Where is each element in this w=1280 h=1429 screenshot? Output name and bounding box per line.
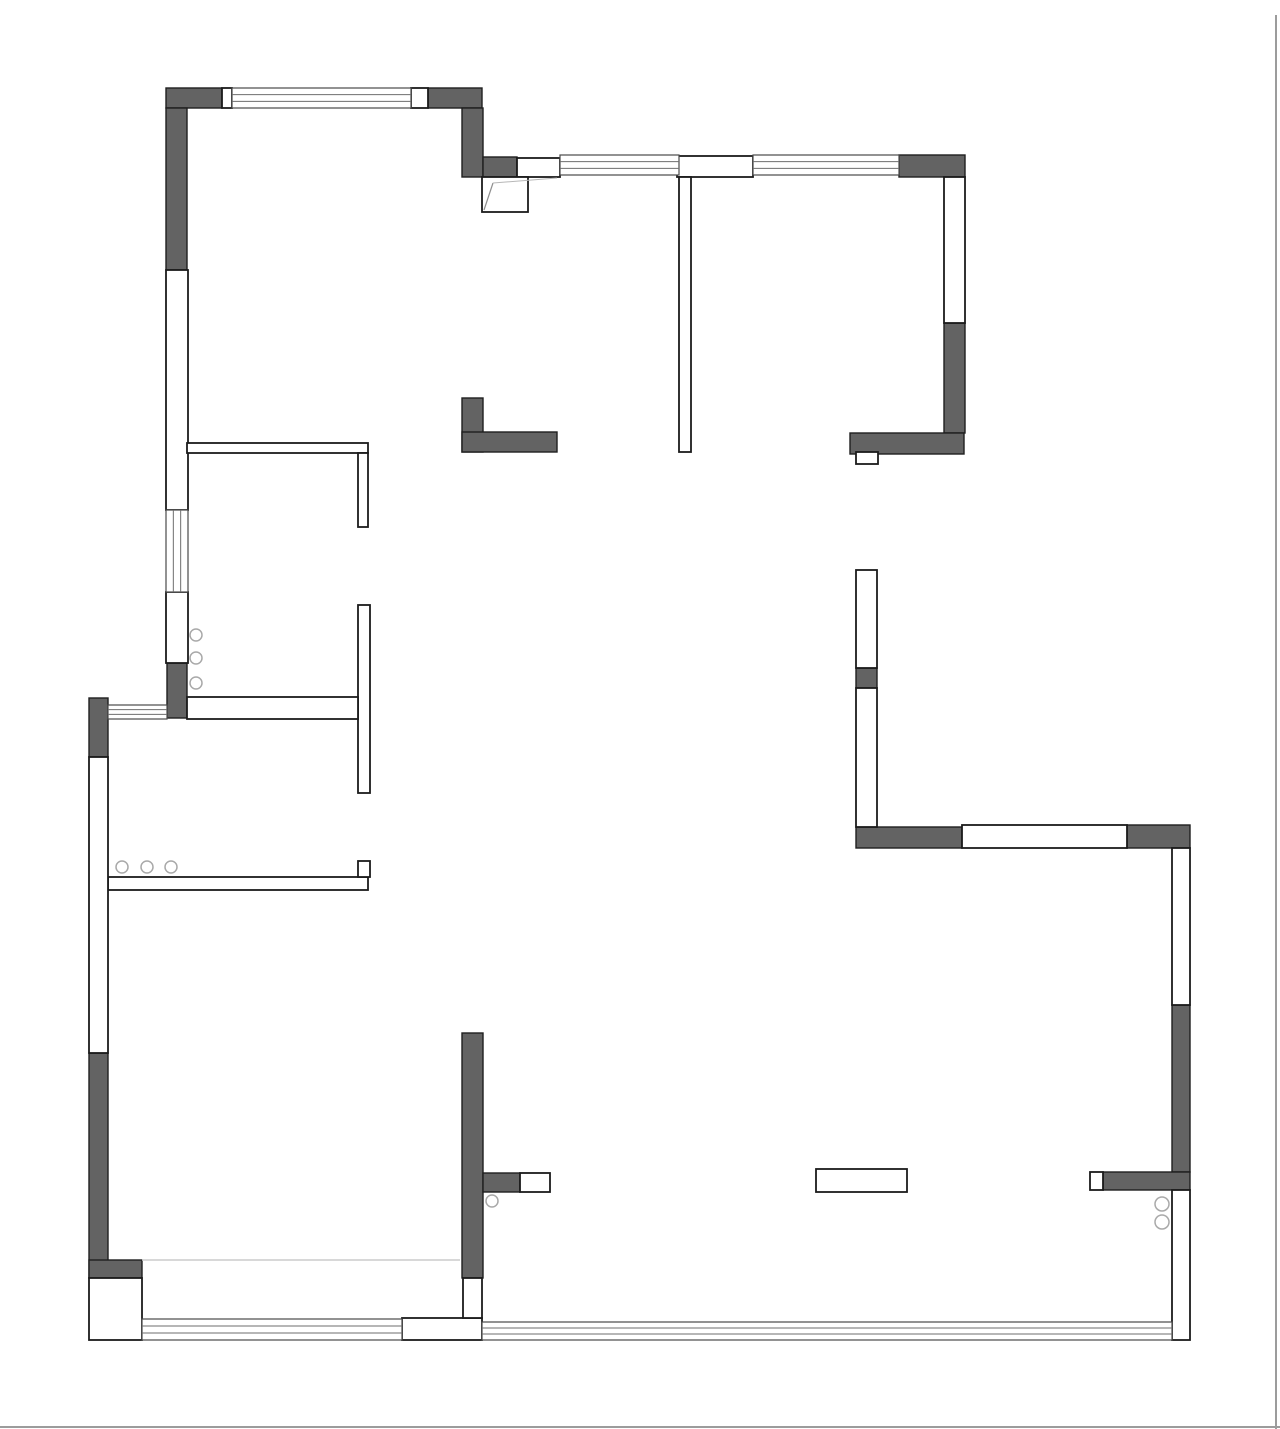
fixture-circle <box>116 861 128 873</box>
partition-wall <box>1090 1172 1103 1190</box>
structural-wall <box>483 1173 520 1192</box>
structural-wall <box>166 88 222 108</box>
partition-wall <box>108 877 368 890</box>
window <box>560 155 679 175</box>
window <box>142 1319 402 1340</box>
floor-plan-page <box>0 0 1280 1429</box>
partition-wall <box>1172 1190 1190 1340</box>
structural-wall <box>167 663 187 718</box>
structural-wall <box>1127 825 1190 848</box>
partition-wall <box>166 592 188 663</box>
fixture-circle <box>486 1195 498 1207</box>
partition-wall <box>187 697 358 719</box>
partition-wall <box>962 825 1127 848</box>
floor-plan-canvas <box>0 0 1280 1429</box>
window <box>108 705 167 719</box>
structural-wall <box>899 155 965 177</box>
partition-wall <box>89 1278 142 1340</box>
fixture-circle <box>190 677 202 689</box>
partition-wall <box>677 156 753 177</box>
window <box>166 510 188 592</box>
window <box>482 1322 1172 1340</box>
structural-wall <box>856 668 877 688</box>
structural-wall <box>483 157 517 177</box>
partition-wall <box>358 605 370 793</box>
partition-wall <box>944 177 965 323</box>
structural-wall <box>462 432 557 452</box>
partition-wall <box>187 443 368 453</box>
partition-wall <box>517 158 560 177</box>
partition-wall <box>856 688 877 827</box>
structural-wall <box>850 433 964 454</box>
partition-wall <box>856 452 878 464</box>
structural-wall <box>1103 1172 1190 1190</box>
structural-wall <box>462 108 483 177</box>
partition-wall <box>463 1278 482 1318</box>
fixture-circle <box>1155 1215 1169 1229</box>
fixture-circle <box>165 861 177 873</box>
structural-wall <box>856 827 962 848</box>
window <box>753 155 899 175</box>
structural-wall <box>462 1033 483 1278</box>
structural-wall <box>89 698 108 757</box>
partition-wall <box>816 1169 907 1192</box>
window <box>232 88 411 108</box>
partition-wall <box>402 1318 482 1340</box>
fixture-circle <box>1155 1197 1169 1211</box>
partition-wall <box>222 88 232 108</box>
structural-wall <box>944 323 965 433</box>
structural-wall <box>89 1053 108 1278</box>
partition-wall <box>411 88 428 108</box>
partition-wall <box>856 570 877 668</box>
structural-wall <box>428 88 482 108</box>
partition-wall <box>166 270 188 510</box>
structural-wall <box>89 1260 142 1278</box>
partition-wall <box>358 861 370 877</box>
structural-wall <box>166 108 187 270</box>
fixture-circle <box>190 652 202 664</box>
partition-wall <box>520 1173 550 1192</box>
partition-wall <box>89 757 108 1053</box>
structural-wall <box>1172 1005 1190 1172</box>
partition-wall <box>679 177 691 452</box>
partition-wall <box>358 453 368 527</box>
fixture-circle <box>141 861 153 873</box>
partition-wall <box>1172 848 1190 1005</box>
fixture-circle <box>190 629 202 641</box>
